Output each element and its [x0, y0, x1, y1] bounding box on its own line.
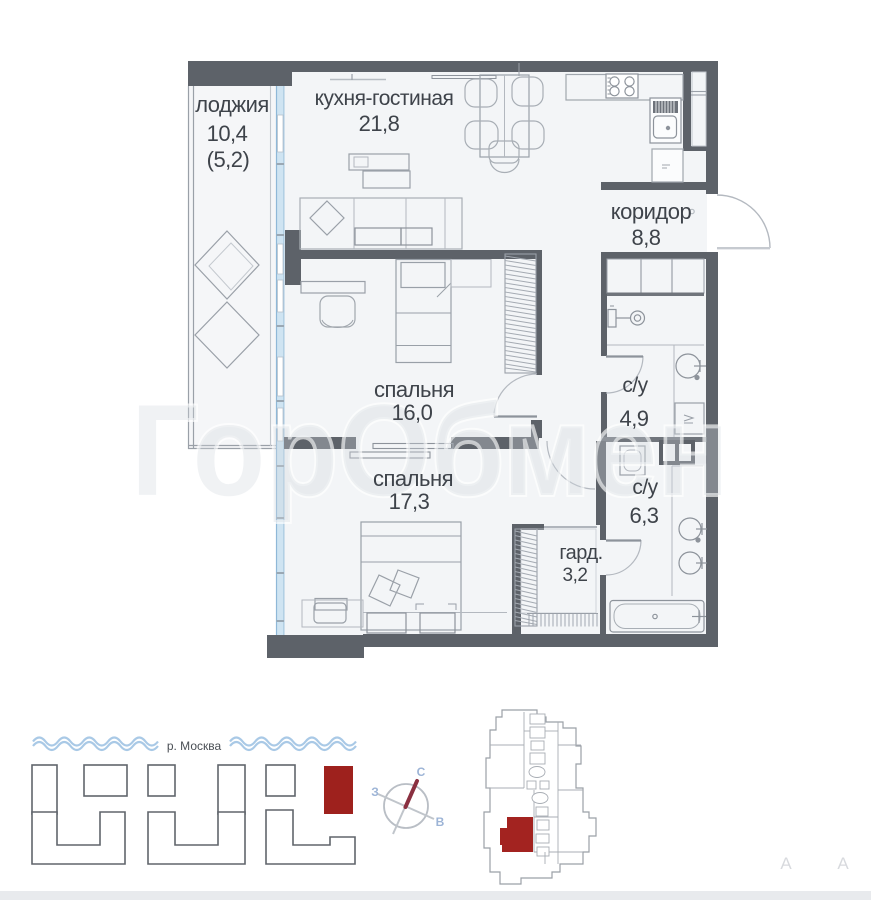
svg-text:ГорОбмен: ГорОбмен — [131, 377, 729, 523]
